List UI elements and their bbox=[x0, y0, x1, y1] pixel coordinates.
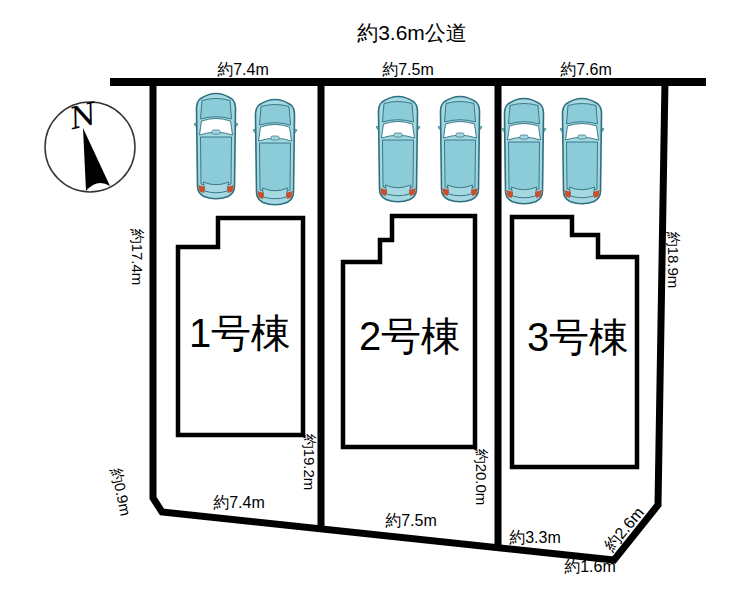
site-plan-drawing: N 約3.6m公道 約7.4m 約7.5m 約7.6m 約17.4m 約0.9m… bbox=[0, 0, 740, 601]
dim-inner-depth-lot1: 約19.2m bbox=[301, 434, 318, 491]
dim-top-lot2: 約7.5m bbox=[382, 61, 434, 78]
site-plan-page: N 約3.6m公道 約7.4m 約7.5m 約7.6m 約17.4m 約0.9m… bbox=[0, 0, 740, 601]
car-icon bbox=[438, 97, 482, 202]
dim-bottom-lot1: 約7.4m bbox=[213, 494, 265, 511]
car-icon bbox=[376, 97, 420, 202]
car-icon bbox=[502, 99, 546, 204]
house-label-2: 2号棟 bbox=[359, 314, 461, 358]
dim-bottom-corner: 約1.6m bbox=[564, 558, 616, 575]
dim-top-lot3: 約7.6m bbox=[560, 61, 612, 78]
dim-bottom-lot2: 約7.5m bbox=[385, 512, 437, 529]
car-icon bbox=[560, 99, 604, 204]
road-title: 約3.6m公道 bbox=[357, 21, 467, 44]
dim-top-lot1: 約7.4m bbox=[217, 61, 269, 78]
dim-left-corner: 約0.9m bbox=[108, 467, 135, 518]
house-label-1: 1号棟 bbox=[189, 311, 291, 355]
dim-right-side: 約18.9m bbox=[665, 232, 682, 289]
house-label-3: 3号棟 bbox=[527, 315, 629, 359]
dim-bottom-lot3: 約3.3m bbox=[509, 529, 561, 546]
car-icon bbox=[194, 94, 238, 199]
dim-inner-depth-lot2: 約20.0m bbox=[473, 449, 490, 506]
car-icon bbox=[253, 100, 297, 205]
dim-left-side: 約17.4m bbox=[129, 229, 146, 286]
